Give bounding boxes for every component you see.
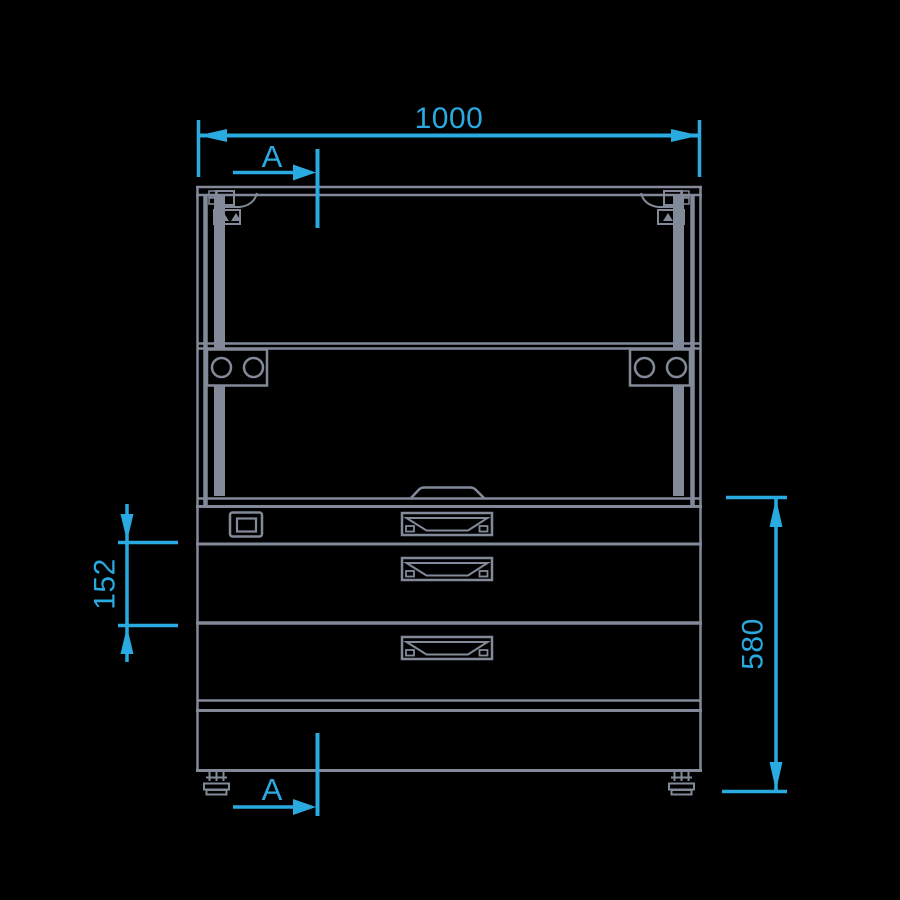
arrow-up-icon (121, 627, 134, 654)
section-marker-top-label: A (262, 139, 283, 174)
hinge-plate-left (207, 350, 267, 386)
worktop-handle-profile (411, 488, 484, 499)
arrow-right-icon (293, 799, 316, 815)
dimension-drawer-pitch: 152 (89, 504, 179, 662)
drawer-2-handle (402, 558, 492, 580)
leveling-foot-right (669, 772, 694, 795)
cabinet-technical-drawing: 1000 A A 580 152 (0, 0, 900, 900)
arrow-left-icon (199, 129, 228, 142)
arrow-down-icon (770, 762, 783, 791)
arrow-right-icon (293, 165, 316, 181)
dim-height-label: 580 (737, 618, 770, 670)
section-marker-top: A (233, 139, 318, 228)
drawing-canvas: 1000 A A 580 152 (0, 0, 900, 900)
drawer-1-handle (402, 513, 492, 535)
lock-inner (237, 519, 256, 532)
cabinet-outline (196, 186, 702, 795)
arrow-up-icon (770, 499, 783, 528)
drawer-3-handle (402, 637, 492, 659)
dim-drawer-pitch-label: 152 (89, 558, 122, 610)
hinge-plate (630, 350, 690, 386)
dim-width-label: 1000 (415, 102, 484, 135)
lock-outer (230, 513, 262, 537)
section-marker-bottom-label: A (262, 772, 283, 807)
dimension-lower-height: 580 (722, 498, 787, 792)
hinge-plate-right (630, 350, 690, 386)
arrow-right-icon (671, 129, 700, 142)
leveling-foot-left (204, 772, 229, 795)
right-post-wide-bar (673, 195, 684, 496)
cam-lock (230, 513, 262, 537)
section-marker-bottom: A (233, 733, 318, 816)
left-post-wide-bar (214, 195, 225, 496)
hinge-plate (207, 350, 267, 386)
arrow-down-icon (121, 514, 134, 541)
